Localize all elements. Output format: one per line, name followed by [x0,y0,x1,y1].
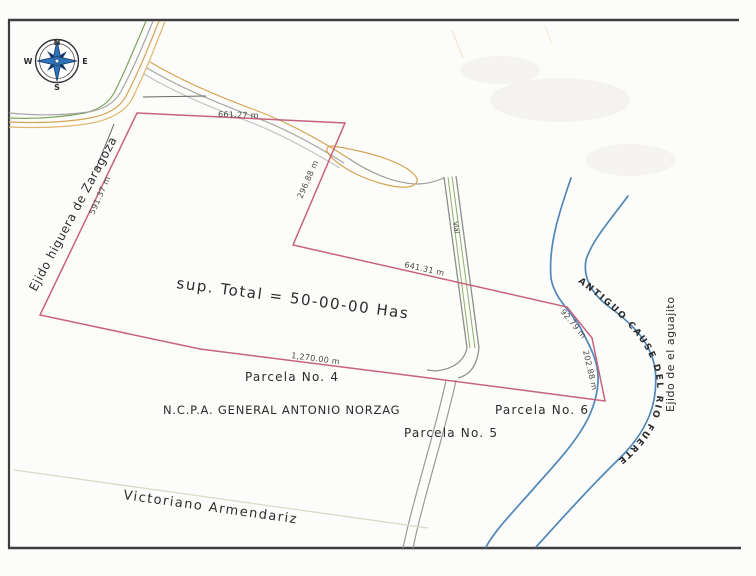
dim-east-1: 92.79 m [558,308,588,341]
label-parcela-5: Parcela No. 5 [404,426,498,440]
smudge-mark [452,30,463,58]
canal-flare-left [427,348,467,371]
south-faint-line [14,470,428,528]
road-south-left [403,380,446,548]
label-ejido-aguajito: Ejido de el aguajito [664,297,677,412]
smudge [585,144,675,176]
compass-hub [55,59,59,63]
label-victoriano-armendariz: Victoriano Armendariz [122,488,298,527]
label-ncpa-owner: N.C.P.A. GENERAL ANTONIO NORZAG [163,403,400,417]
compass-label-w: W [24,57,33,66]
scanned-parcel-map: N S E W Ejido higuera de Zaragoza Ejido … [0,0,756,576]
scan-noise [452,26,675,176]
smudge-mark [545,26,552,44]
road-green-line [9,21,146,118]
canal-right-line [456,176,479,348]
map-frame [8,20,741,548]
road-orange-line [9,21,159,123]
compass-label-e: E [82,57,87,66]
smudge [460,56,540,84]
label-sup-total: sup. Total = 50-00-00 Has [175,274,410,322]
dim-top: 661.27 m [218,110,259,120]
compass-label-n: N [54,38,61,47]
road-south-right [413,380,456,548]
road-southeast-branch [144,62,444,187]
road-orange-loop [327,146,417,187]
label-canal: Vial [451,221,461,234]
compass-rose: N S E W [24,38,88,92]
label-ejido-zaragoza: Ejido higuera de Zaragoza [26,134,120,293]
smudge [490,78,630,122]
road-northwest [9,21,165,128]
compass-label-s: S [54,83,60,92]
label-parcela-6: Parcela No. 6 [495,403,589,417]
canal [403,176,479,548]
road-to-canal [348,158,444,184]
river [486,178,656,547]
label-parcela-4: Parcela No. 4 [245,370,339,384]
river-left-line [486,178,598,547]
dimension-tick-top [143,96,206,97]
canal-flare-right [458,348,479,378]
dim-upper-right: 296.88 m [296,159,321,200]
